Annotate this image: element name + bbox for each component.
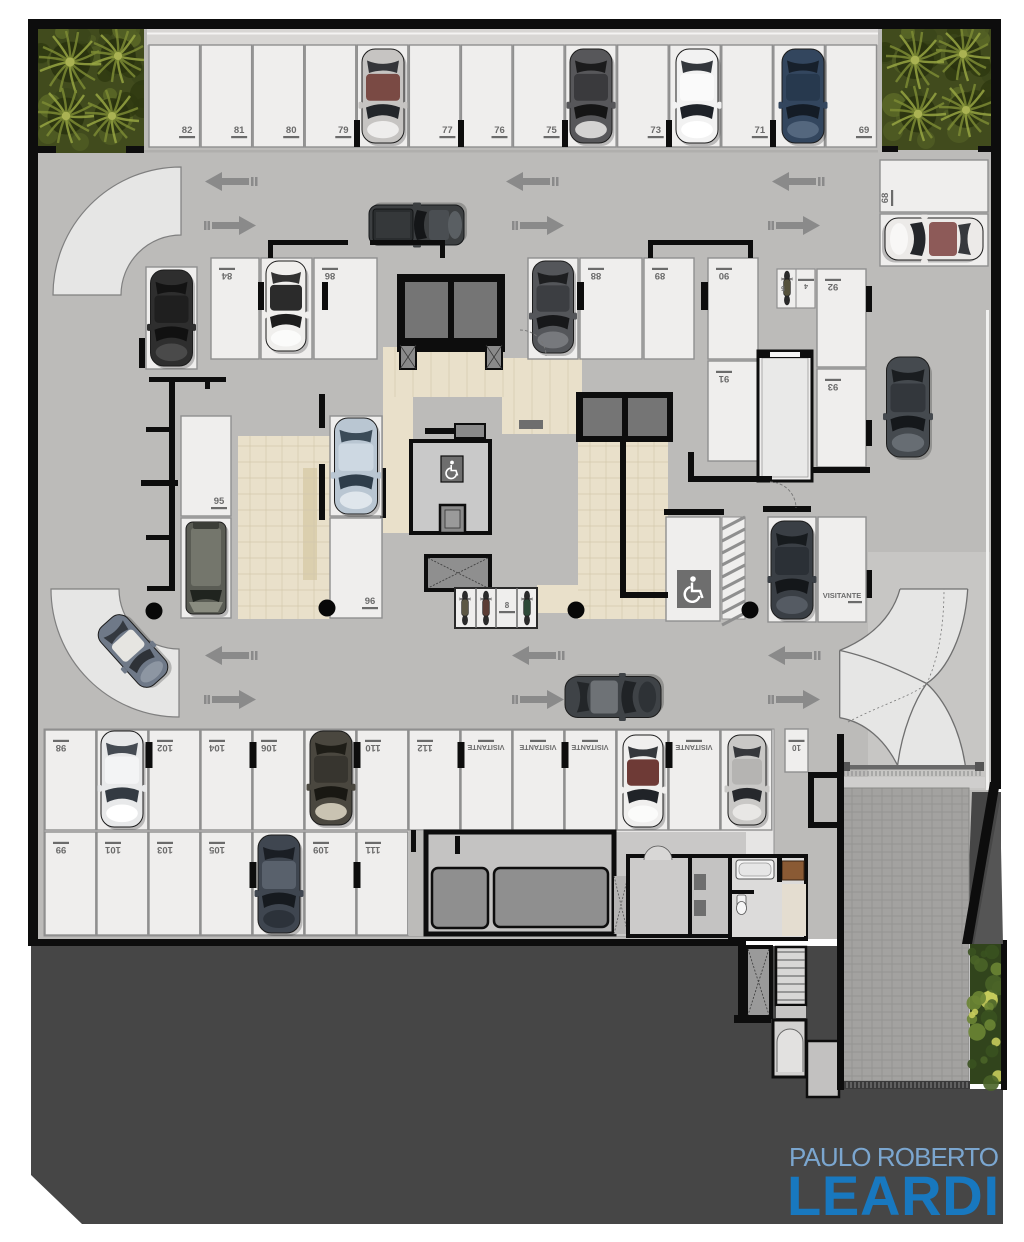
svg-text:73: 73 [650, 125, 661, 136]
svg-text:110: 110 [365, 742, 380, 753]
svg-text:99: 99 [56, 844, 67, 855]
svg-text:109: 109 [313, 844, 329, 855]
svg-text:69: 69 [859, 125, 870, 136]
svg-text:104: 104 [208, 742, 225, 753]
svg-text:VISITANTE: VISITANTE [467, 743, 504, 752]
svg-text:VISITANTE: VISITANTE [823, 591, 862, 600]
svg-text:10: 10 [792, 743, 801, 752]
svg-text:79: 79 [338, 125, 349, 136]
svg-text:98: 98 [56, 742, 67, 753]
svg-text:5: 5 [781, 284, 785, 291]
svg-text:91: 91 [718, 373, 729, 384]
svg-text:VISITANTE: VISITANTE [571, 743, 608, 752]
svg-text:8: 8 [505, 601, 510, 610]
svg-text:95: 95 [214, 496, 225, 507]
svg-text:103: 103 [157, 844, 173, 855]
svg-text:76: 76 [494, 125, 505, 136]
svg-text:90: 90 [719, 270, 730, 281]
svg-text:LEARDI: LEARDI [787, 1164, 1001, 1227]
svg-text:86: 86 [325, 270, 336, 281]
svg-text:112: 112 [417, 742, 432, 753]
svg-text:VISITANTE: VISITANTE [675, 743, 712, 752]
svg-text:4: 4 [804, 282, 808, 289]
svg-text:105: 105 [208, 844, 225, 855]
svg-text:80: 80 [286, 125, 297, 136]
svg-text:106: 106 [261, 742, 277, 753]
svg-text:102: 102 [157, 742, 173, 753]
svg-text:VISITANTE: VISITANTE [519, 743, 556, 752]
svg-text:96: 96 [365, 596, 376, 607]
svg-text:75: 75 [546, 125, 557, 136]
svg-text:88: 88 [591, 270, 602, 281]
svg-text:84: 84 [221, 270, 232, 281]
svg-text:89: 89 [655, 270, 666, 281]
svg-text:71: 71 [755, 125, 766, 136]
svg-text:111: 111 [365, 844, 381, 855]
svg-text:77: 77 [442, 125, 453, 136]
svg-text:93: 93 [828, 381, 839, 392]
svg-text:68: 68 [880, 193, 891, 204]
svg-text:92: 92 [828, 281, 839, 292]
svg-text:81: 81 [234, 125, 245, 136]
svg-text:82: 82 [182, 125, 193, 136]
svg-text:101: 101 [104, 844, 121, 855]
